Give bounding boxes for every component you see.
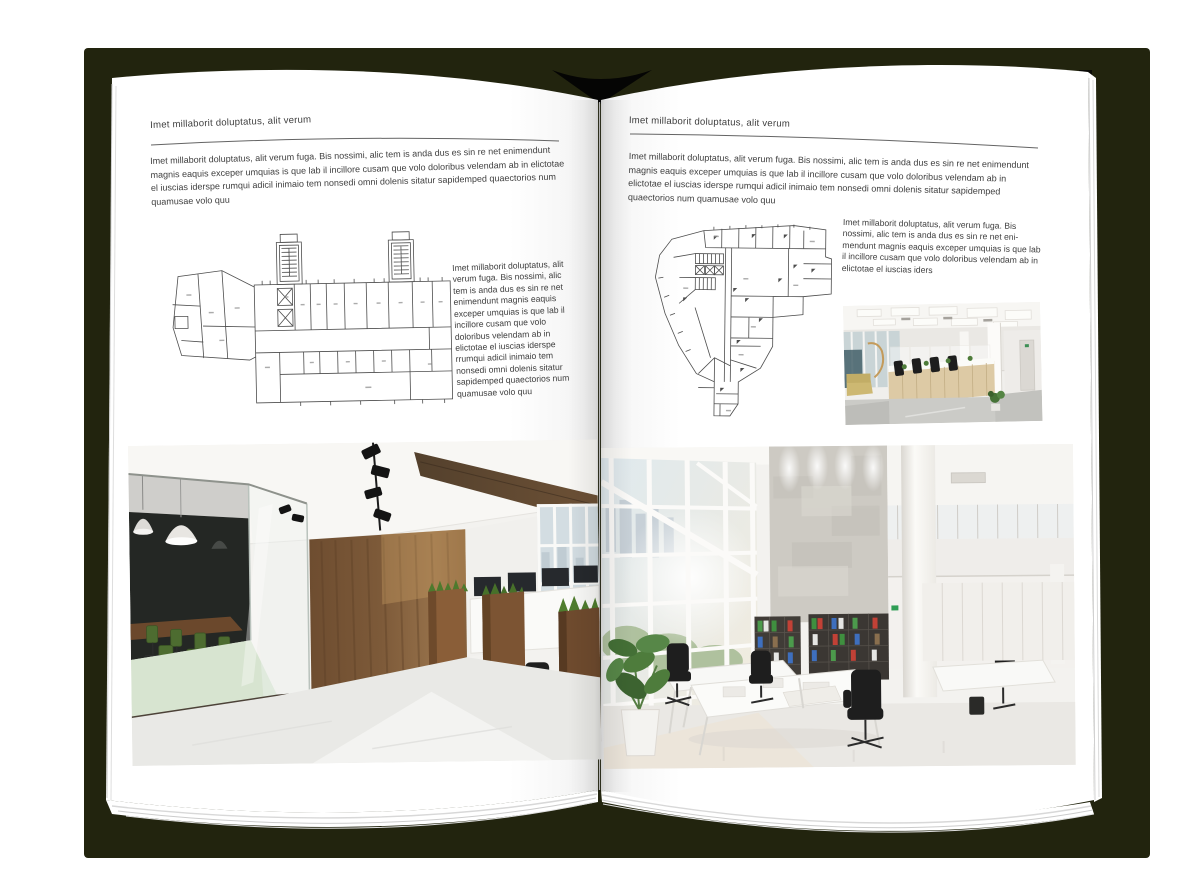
floor-plan-left-drawing xyxy=(157,223,459,419)
left-intro-paragraph: Imet millaborit doluptatus, alit verum f… xyxy=(150,143,569,209)
right-side-paragraph: Imet millaborit doluptatus, alit verum f… xyxy=(842,217,1043,279)
photo-bright-atrium-office xyxy=(601,444,1076,769)
right-intro-paragraph: Imet millaborit doluptatus, alit verum f… xyxy=(628,150,1035,213)
photo-dark-wood-office xyxy=(128,439,601,766)
left-side-paragraph: Imet millaborit doluptatus, alit verum f… xyxy=(452,259,573,400)
left-page: Imet millaborit doluptatus, alit verum I… xyxy=(0,0,600,891)
right-page: Imet millaborit doluptatus, alit verum I… xyxy=(600,0,1200,891)
floor-plan-right-drawing xyxy=(642,217,838,421)
right-header-rule xyxy=(628,131,1040,149)
left-page-title: Imet millaborit doluptatus, alit verum xyxy=(150,109,470,131)
photo-open-office-small xyxy=(843,302,1042,425)
magazine-mockup: Imet millaborit doluptatus, alit verum I… xyxy=(0,0,1200,891)
